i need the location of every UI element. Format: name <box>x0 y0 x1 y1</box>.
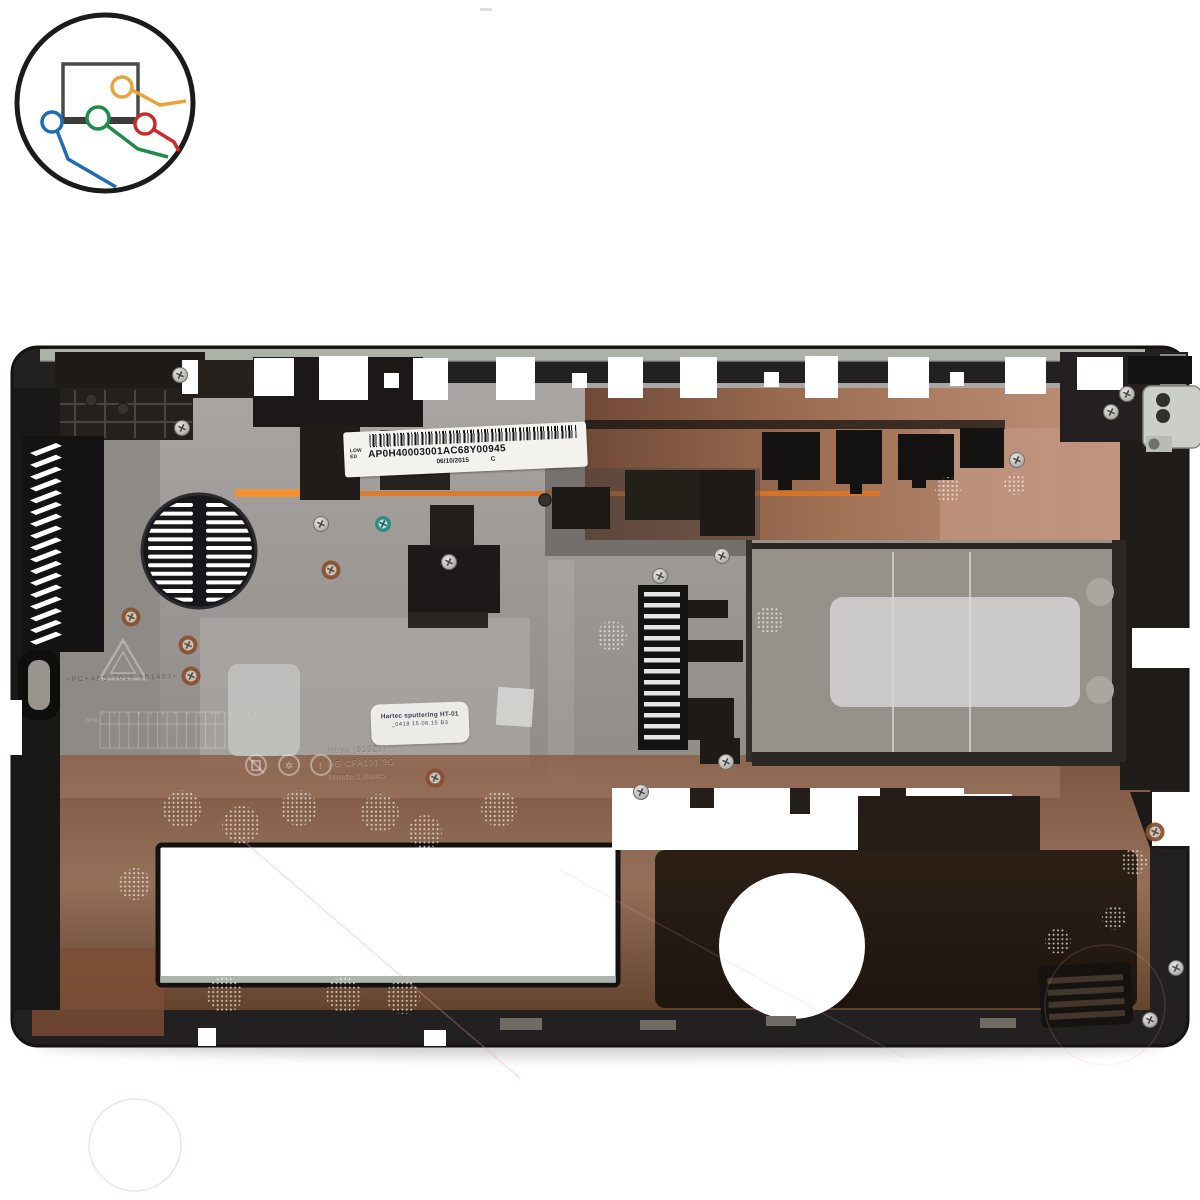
exclamation-glyph: ! <box>319 761 322 771</box>
handle-ring-inner <box>28 660 50 710</box>
speaker-rib-block <box>1038 962 1133 1029</box>
ram-bay-bottom-line <box>752 752 1120 766</box>
ladder-slot <box>644 735 680 740</box>
comb-cutout <box>608 357 643 398</box>
store-logo <box>8 6 208 216</box>
mesh-dot-circle <box>597 621 627 651</box>
fan-slat <box>148 546 193 550</box>
ladder-slot <box>644 691 680 696</box>
label-side-bottom: ED <box>350 454 368 461</box>
mesh-dot-circle <box>361 794 399 832</box>
fan-slat <box>206 572 252 576</box>
ladder-slot <box>644 636 680 641</box>
comb-cutout <box>950 372 964 386</box>
mesh-dot-circle <box>1045 928 1071 954</box>
comb-cutout <box>680 357 717 398</box>
bottom-notch-1 <box>198 1028 216 1046</box>
qc-sticker-line2: _0418 15.06.15 B3 <box>371 719 469 728</box>
fan-slat <box>148 563 193 567</box>
mesh-dot-circle <box>935 477 961 503</box>
comb-cutout <box>384 373 399 388</box>
ladder-slot <box>644 713 680 718</box>
comb-cutout <box>413 358 448 400</box>
mesh-dot-circle <box>481 791 517 827</box>
mesh-dot-circle <box>326 977 362 1013</box>
mesh-dot-circle <box>119 868 151 900</box>
product-photo: ✲ ! <box>0 0 1200 1200</box>
fan-slat <box>148 537 193 541</box>
mesh-dot-circle <box>755 606 783 634</box>
right-notch-2 <box>1132 628 1190 668</box>
fan-slat <box>206 563 252 567</box>
mesh-dot-circle <box>408 815 442 849</box>
bright-patch-left <box>228 664 300 756</box>
comb-cutout <box>572 373 587 388</box>
recycle-sun-glyph: ✲ <box>285 761 293 772</box>
molded-line-3: Minde Lihans <box>328 768 395 783</box>
date-grid-side: 30 11 <box>86 718 98 725</box>
bracket-module <box>408 545 500 613</box>
top-edge-highlight <box>40 349 1145 361</box>
ladder-slot <box>644 614 680 619</box>
mesh-dot-circle <box>1004 473 1026 495</box>
mesh-dot-circle <box>222 806 260 844</box>
mesh-dot-circle <box>207 977 243 1013</box>
mesh-dot-circle <box>1121 849 1147 875</box>
mesh-dot-circle <box>386 980 420 1014</box>
label-rev: C <box>491 455 496 462</box>
comb-cutout <box>764 372 779 387</box>
top-strip-dark <box>190 360 254 398</box>
ladder-slot <box>644 669 680 674</box>
ram-bay-top-line <box>752 543 1120 549</box>
ladder-slot <box>644 603 680 608</box>
ladder-slot <box>644 647 680 652</box>
connector-black-3 <box>700 470 755 536</box>
ladder-slot <box>644 658 680 663</box>
molded-text-lines: Huyu (61321) HG CFA191 9G Minde Lihans <box>327 743 395 784</box>
connector-black-2 <box>625 470 700 520</box>
label-date: 06/10/2015 <box>436 456 469 464</box>
ram-bay-right-edge <box>1112 540 1126 762</box>
ladder-slot <box>644 680 680 685</box>
comb-cutout <box>805 356 838 398</box>
comb-cutout <box>319 356 368 400</box>
comb-cutout <box>1077 357 1123 390</box>
fan-slat <box>206 529 252 533</box>
fan-slat <box>148 572 193 576</box>
bracket-arm <box>430 505 474 547</box>
bracket-foot <box>408 612 488 628</box>
right-frame <box>1120 440 1188 790</box>
comb-cutout <box>1005 357 1046 394</box>
comb-cutout <box>888 357 929 398</box>
comb-cutout <box>254 358 294 396</box>
qc-sticker: Hartec sputtering HT-01 _0418 15.06.15 B… <box>370 701 469 745</box>
ladder-slot <box>644 702 680 707</box>
fan-slat <box>148 529 193 533</box>
ram-bay-boss-1 <box>1086 578 1114 606</box>
bright-patch-center <box>496 687 535 727</box>
fan-slat <box>148 555 193 559</box>
ladder-slot <box>644 724 680 729</box>
connector-black-1 <box>552 487 610 529</box>
dark-arch <box>858 796 1040 854</box>
fan-slat <box>206 546 252 550</box>
ram-bay-boss-2 <box>1086 676 1114 704</box>
fan-slat <box>206 555 252 559</box>
bottom-notch-2 <box>424 1030 446 1046</box>
screw-dark <box>539 494 551 506</box>
mesh-dot-circle <box>281 790 317 826</box>
screw-dark <box>85 394 97 406</box>
fan-slat <box>206 537 252 541</box>
ram-door-sticker <box>830 597 1080 707</box>
ladder-slot <box>644 625 680 630</box>
mesh-dot-circle <box>163 790 201 828</box>
mesh-dot-circle <box>1102 906 1126 930</box>
left-edge-notch <box>10 700 22 755</box>
date-grid-numbers: 1 2 3 4 5 6 7 8 9 10 11 12 <box>101 711 231 716</box>
fan-grille <box>142 494 256 608</box>
ladder-slot <box>644 592 680 597</box>
screw-dark <box>117 403 129 415</box>
comb-cutout <box>496 357 535 400</box>
